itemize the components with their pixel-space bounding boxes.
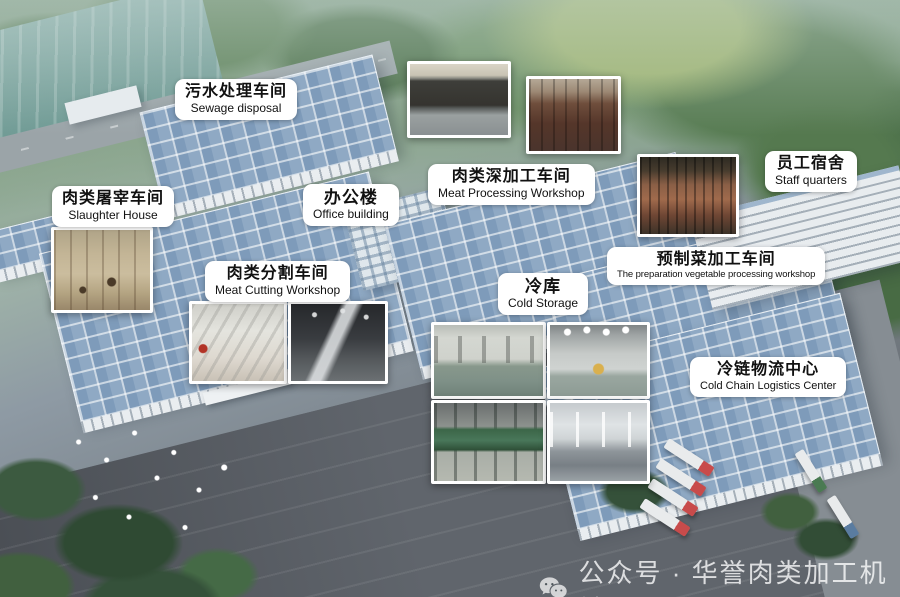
label-en: Sewage disposal <box>185 102 287 116</box>
label-zh: 污水处理车间 <box>185 82 287 102</box>
label-zh: 办公楼 <box>313 187 389 208</box>
hanging-carcass-photo <box>637 154 739 237</box>
label-meat-processing: 肉类深加工车间 Meat Processing Workshop <box>428 164 595 205</box>
processing-line-photo <box>407 61 511 138</box>
label-zh: 冷链物流中心 <box>700 360 836 380</box>
watermark: 公众号 · 华誉肉类加工机械 <box>538 553 900 597</box>
label-cold-storage: 冷库 Cold Storage <box>498 273 588 315</box>
label-slaughter-house: 肉类屠宰车间 Slaughter House <box>52 186 174 227</box>
label-prep-vegetable: 预制菜加工车间 The preparation vegetable proces… <box>607 247 825 285</box>
slaughter-interior-photo <box>51 227 153 313</box>
label-zh: 员工宿舍 <box>775 154 847 174</box>
cold-corridor-photo <box>431 322 546 399</box>
compressor-room-photo <box>431 400 546 484</box>
label-cold-chain-logistics: 冷链物流中心 Cold Chain Logistics Center <box>690 357 846 397</box>
label-zh: 预制菜加工车间 <box>617 250 815 270</box>
label-en: The preparation vegetable processing wor… <box>617 270 815 281</box>
label-staff-quarters: 员工宿舍 Staff quarters <box>765 151 857 192</box>
label-en: Meat Processing Workshop <box>438 187 585 201</box>
label-zh: 肉类屠宰车间 <box>62 189 164 209</box>
label-en: Slaughter House <box>62 209 164 223</box>
label-en: Staff quarters <box>775 174 847 188</box>
smokehouse-photo <box>526 76 621 154</box>
factory-aerial-rendering: 污水处理车间 Sewage disposal 肉类屠宰车间 Slaughter … <box>0 0 900 597</box>
label-meat-cutting: 肉类分割车间 Meat Cutting Workshop <box>205 261 350 302</box>
watermark-text: 公众号 · 华誉肉类加工机械 <box>579 553 900 597</box>
condenser-unit-photo <box>547 400 650 484</box>
label-en: Cold Chain Logistics Center <box>700 380 836 393</box>
label-en: Meat Cutting Workshop <box>215 284 340 298</box>
label-en: Office building <box>313 208 389 222</box>
label-zh: 肉类深加工车间 <box>438 167 585 187</box>
wechat-icon <box>538 575 569 597</box>
label-zh: 冷库 <box>508 276 578 297</box>
cold-room-photo <box>547 322 650 399</box>
label-sewage-disposal: 污水处理车间 Sewage disposal <box>175 79 297 120</box>
conveyor-hall-photo <box>288 301 388 384</box>
label-office-building: 办公楼 Office building <box>303 184 399 226</box>
cutting-room-photo <box>189 301 287 384</box>
label-zh: 肉类分割车间 <box>215 264 340 284</box>
bird-flock <box>45 415 325 565</box>
label-en: Cold Storage <box>508 297 578 311</box>
